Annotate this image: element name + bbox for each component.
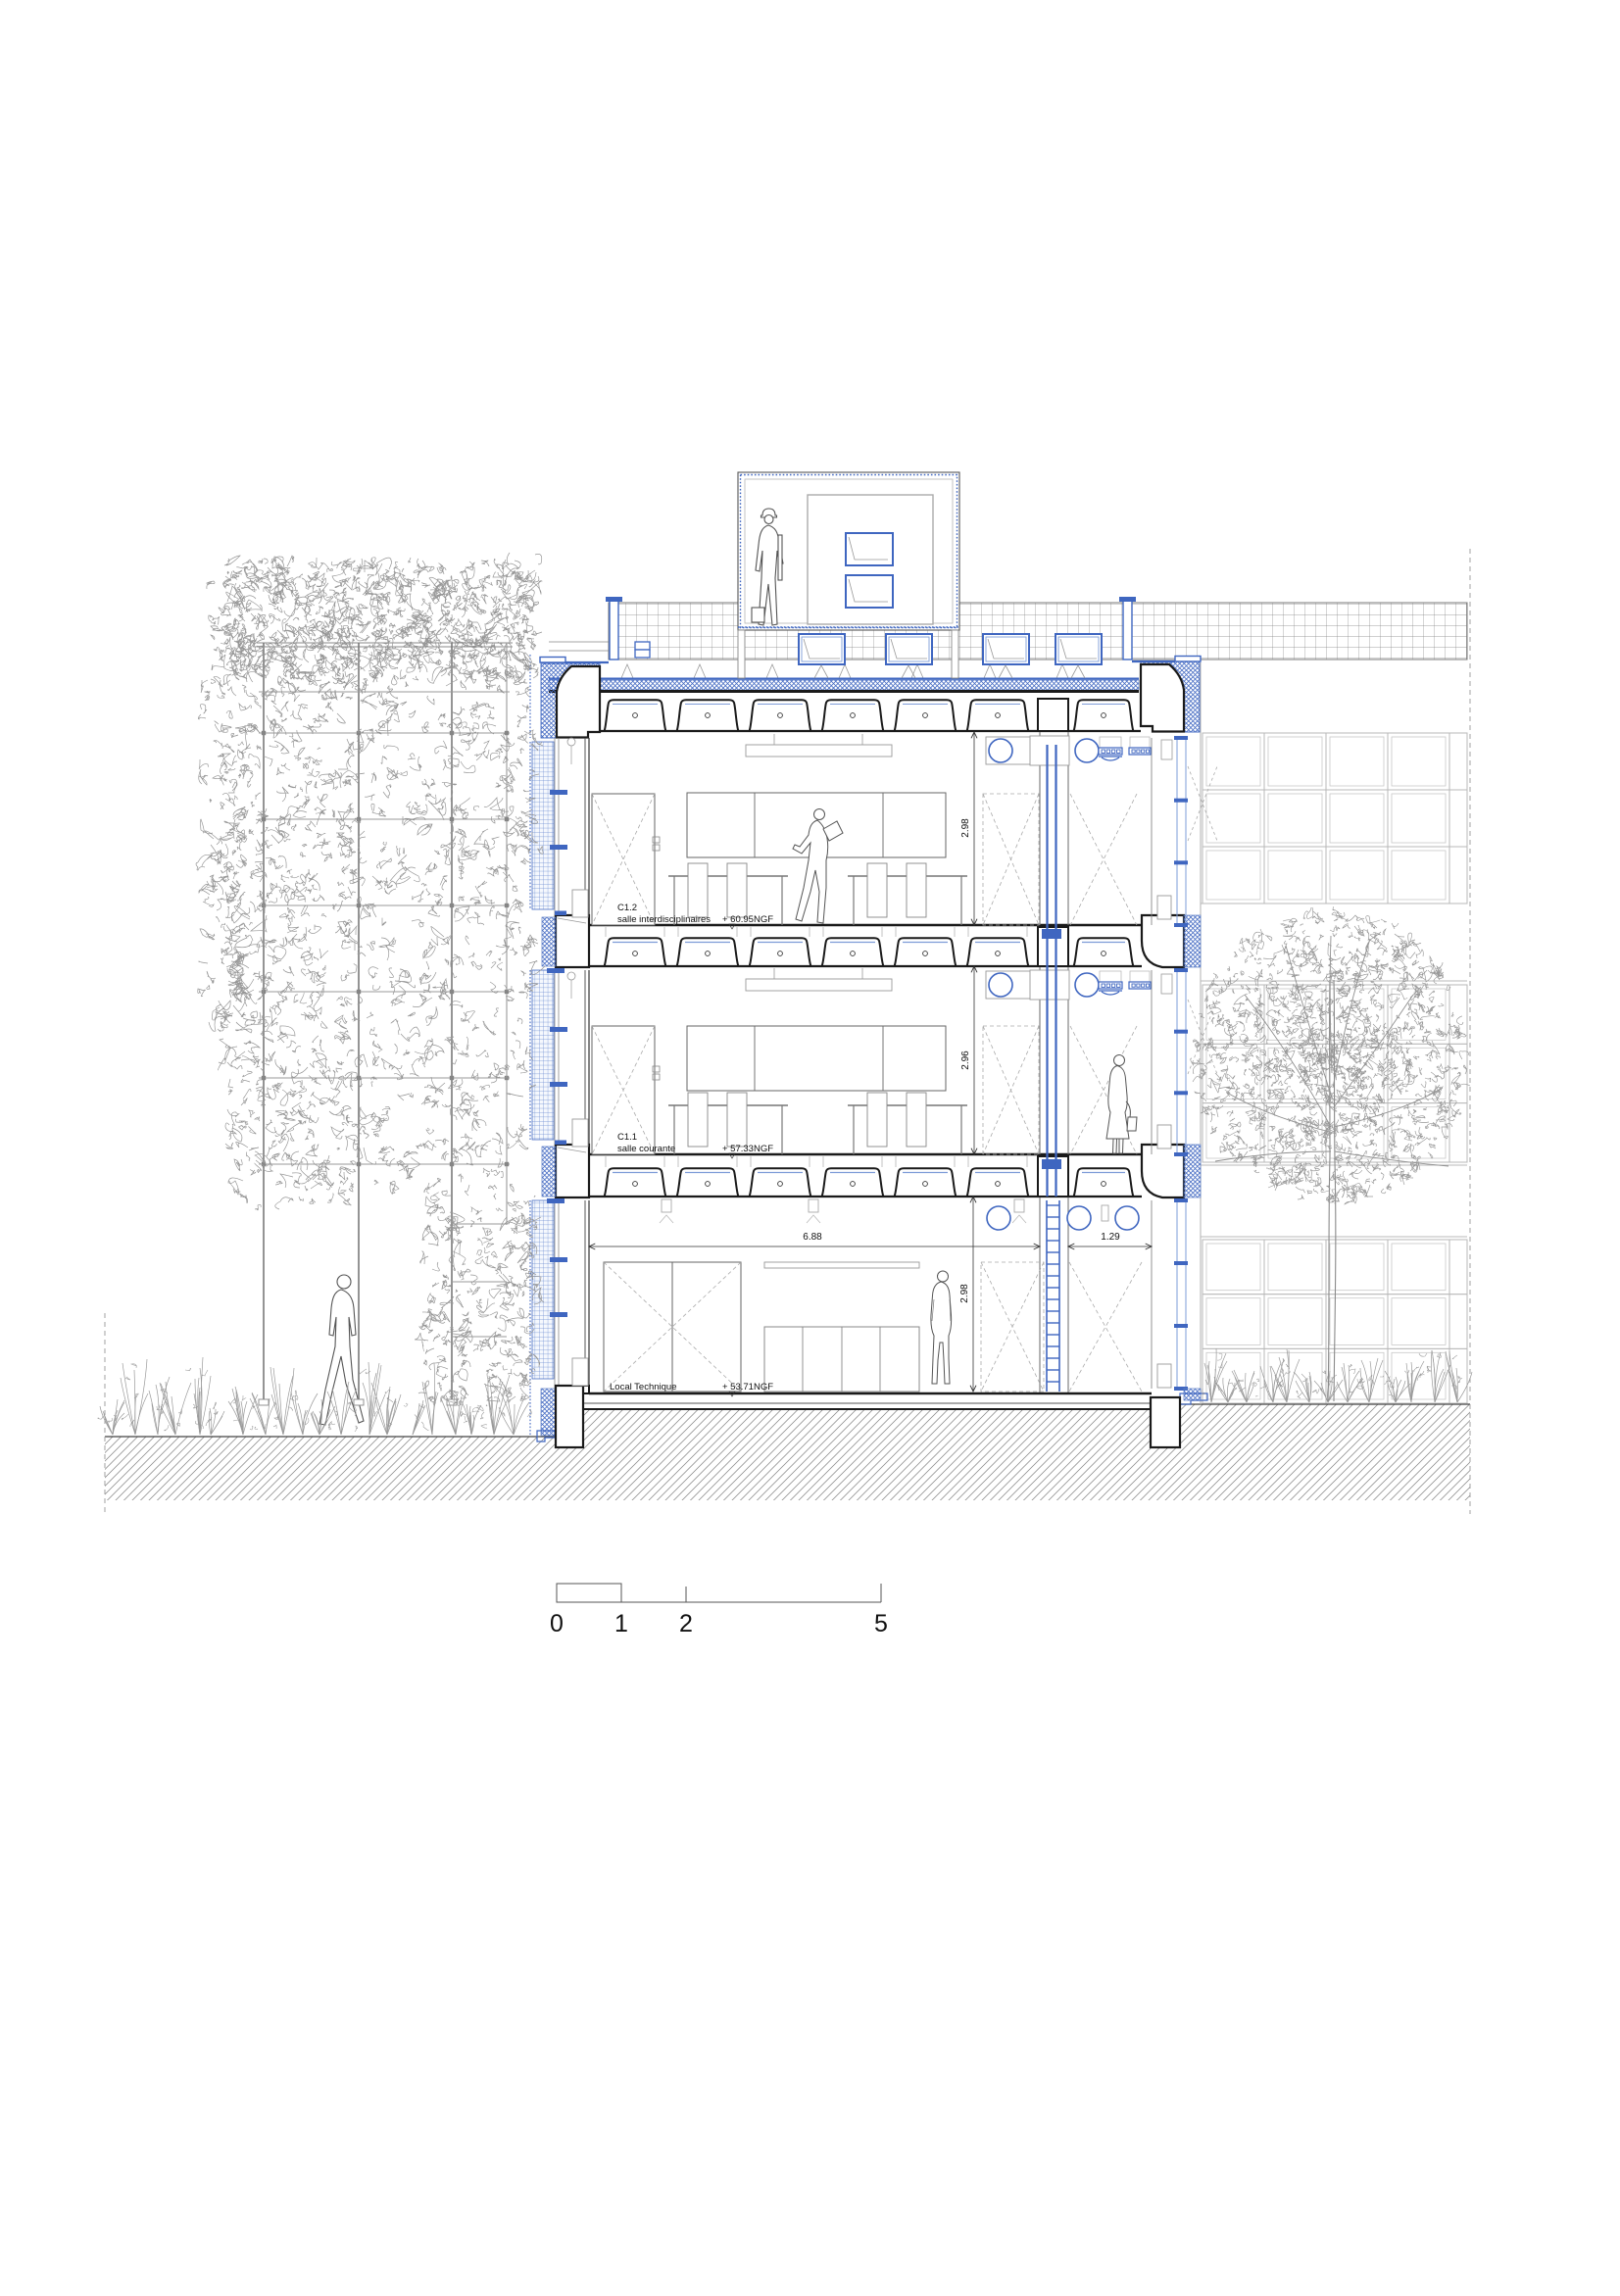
svg-text:C1.2: C1.2 (617, 903, 637, 913)
svg-text:+ 53.71NGF: + 53.71NGF (722, 1382, 773, 1392)
svg-text:5: 5 (874, 1610, 888, 1637)
svg-text:2.98: 2.98 (960, 818, 971, 838)
svg-text:+ 60.95NGF: + 60.95NGF (722, 914, 773, 925)
svg-text:salle interdisciplinaires: salle interdisciplinaires (617, 914, 711, 925)
svg-text:Local Technique: Local Technique (610, 1382, 677, 1392)
svg-text:1.29: 1.29 (1101, 1232, 1120, 1243)
svg-text:0: 0 (550, 1610, 564, 1637)
svg-text:1: 1 (614, 1610, 628, 1637)
svg-text:2.96: 2.96 (960, 1050, 971, 1070)
svg-text:salle courante: salle courante (617, 1144, 675, 1154)
svg-text:C1.1: C1.1 (617, 1132, 637, 1143)
svg-text:+ 57.33NGF: + 57.33NGF (722, 1144, 773, 1154)
svg-text:2.98: 2.98 (959, 1284, 970, 1303)
svg-text:6.88: 6.88 (803, 1232, 822, 1243)
svg-text:2: 2 (679, 1610, 693, 1637)
